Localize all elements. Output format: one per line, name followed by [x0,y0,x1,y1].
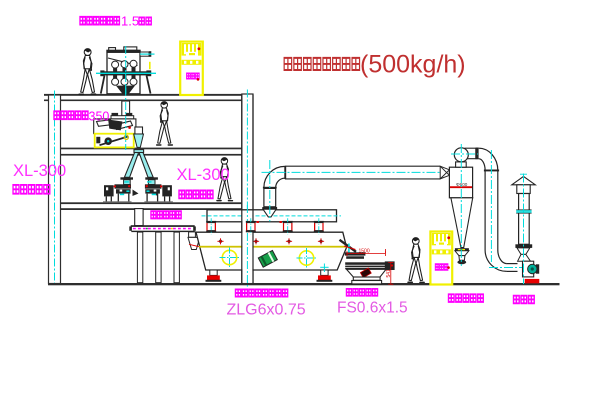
svg-text:1500: 1500 [359,249,370,255]
svg-text:XL-300: XL-300 [177,166,230,184]
svg-text:1.5: 1.5 [121,14,139,29]
svg-text:ZLG6x0.75: ZLG6x0.75 [227,302,306,319]
svg-text:350: 350 [89,110,110,124]
svg-text:Φ600: Φ600 [456,182,468,187]
svg-text:(500kg/h): (500kg/h) [360,51,466,79]
svg-text:541: 541 [386,269,392,278]
svg-text:XL-300: XL-300 [13,162,66,180]
svg-text:FS0.6x1.5: FS0.6x1.5 [337,300,408,317]
